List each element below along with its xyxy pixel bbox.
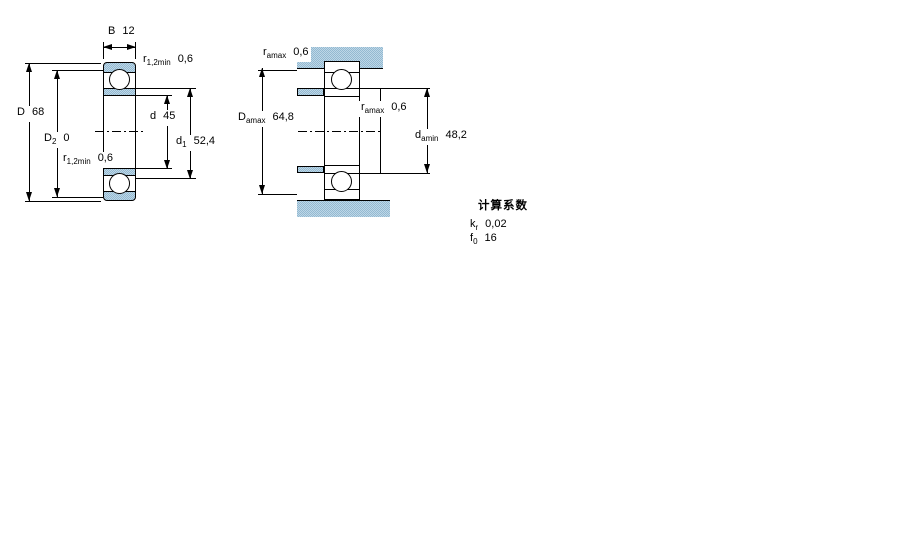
factor-value: 16 <box>485 232 497 244</box>
dim-subscript: 2 <box>52 137 56 146</box>
dim-label-bore-diameter: d45 <box>148 110 177 126</box>
dim-label-ra-top: ramax0,6 <box>261 46 311 62</box>
dim-subscript: 1,2min <box>147 58 171 67</box>
arrowhead-right-icon <box>127 44 136 50</box>
dim-value: 0,6 <box>293 46 308 58</box>
d1-dimension-line <box>190 88 191 179</box>
dim-label-da-max: Damax64,8 <box>236 111 296 127</box>
centerline <box>298 131 383 132</box>
ball-bottom <box>331 171 352 192</box>
arrowhead-left-icon <box>103 44 112 50</box>
dim-value: 45 <box>163 110 175 122</box>
d-outer-dimension-line <box>29 63 30 201</box>
dim-subscript: 1 <box>182 140 186 149</box>
dim-symbol: d <box>150 110 156 122</box>
dim-label-d1: d152,4 <box>174 135 217 151</box>
dim-subscript: amax <box>246 116 266 125</box>
dim-value: 0 <box>63 132 69 144</box>
da-extension-line-bottom <box>258 194 297 195</box>
dim-value: 0,6 <box>391 101 406 113</box>
arrowhead-down-icon <box>187 170 193 179</box>
dim-value: 48,2 <box>445 129 466 141</box>
dim-symbol: B <box>108 25 115 37</box>
d2-extension-line-bottom <box>52 197 103 198</box>
inner-ring-bore-line-bottom <box>325 165 359 166</box>
d-bore-dimension-line <box>167 95 168 169</box>
dim-label-d2: D20 <box>42 132 72 148</box>
d2-extension-line-top <box>52 70 103 71</box>
dim-label-width: B12 <box>106 25 137 41</box>
dim-subscript: amin <box>421 134 438 143</box>
dim-label-outer-diameter: D68 <box>15 106 46 122</box>
centerline <box>95 131 144 132</box>
arrowhead-up-icon <box>26 63 32 72</box>
da-min-extension-line-bottom <box>360 173 430 174</box>
arrowhead-up-icon <box>164 95 170 104</box>
factor-value: 0,02 <box>485 218 506 230</box>
dim-value: 0,6 <box>98 152 113 164</box>
calculation-factors-title: 计算系数 <box>478 197 528 213</box>
ball-top <box>109 69 130 90</box>
arrowhead-up-icon <box>187 88 193 97</box>
dim-subscript: 1,2min <box>67 157 91 166</box>
da-min-extension-line-top <box>360 88 430 89</box>
shaft-section <box>297 200 390 217</box>
dim-value: 68 <box>32 106 44 118</box>
arrowhead-up-icon <box>54 70 60 79</box>
arrowhead-down-icon <box>164 160 170 169</box>
arrowhead-down-icon <box>424 164 430 173</box>
dim-value: 64,8 <box>273 111 294 123</box>
arrowhead-up-icon <box>259 68 265 77</box>
shaft-shoulder-bottom <box>297 166 324 174</box>
dim-label-da-min: damin48,2 <box>413 129 469 145</box>
arrowhead-down-icon <box>26 192 32 201</box>
dim-symbol: D <box>17 106 25 118</box>
bearing-dimension-diagram: B12 r1,2min0,6 D68 D20 d45 d152,4 r1,2mi <box>0 0 900 560</box>
arrowhead-down-icon <box>54 188 60 197</box>
dim-symbol: D <box>238 111 246 123</box>
arrowhead-down-icon <box>259 185 265 194</box>
da-dimension-line <box>262 68 263 194</box>
dim-label-r-top: r1,2min0,6 <box>141 53 195 69</box>
dim-label-r-bottom: r1,2min0,6 <box>61 152 115 168</box>
ball-bottom <box>109 173 130 194</box>
dim-label-ra-mid: ramax0,6 <box>359 101 409 117</box>
d-outer-extension-line-top <box>25 63 101 64</box>
inner-ring-bore-line-top <box>325 96 359 97</box>
dim-value: 0,6 <box>178 53 193 65</box>
shaft-shoulder-top <box>297 88 324 96</box>
factor-subscript: 0 <box>473 237 477 246</box>
dim-value: 52,4 <box>194 135 215 147</box>
factor-f0: f016 <box>468 232 499 248</box>
dim-subscript: amax <box>267 51 287 60</box>
d-outer-extension-line-bottom <box>25 201 101 202</box>
dim-symbol: D <box>44 132 52 144</box>
factor-subscript: r <box>476 223 479 232</box>
arrowhead-up-icon <box>424 88 430 97</box>
dim-subscript: amax <box>365 106 385 115</box>
dim-value: 12 <box>122 25 134 37</box>
